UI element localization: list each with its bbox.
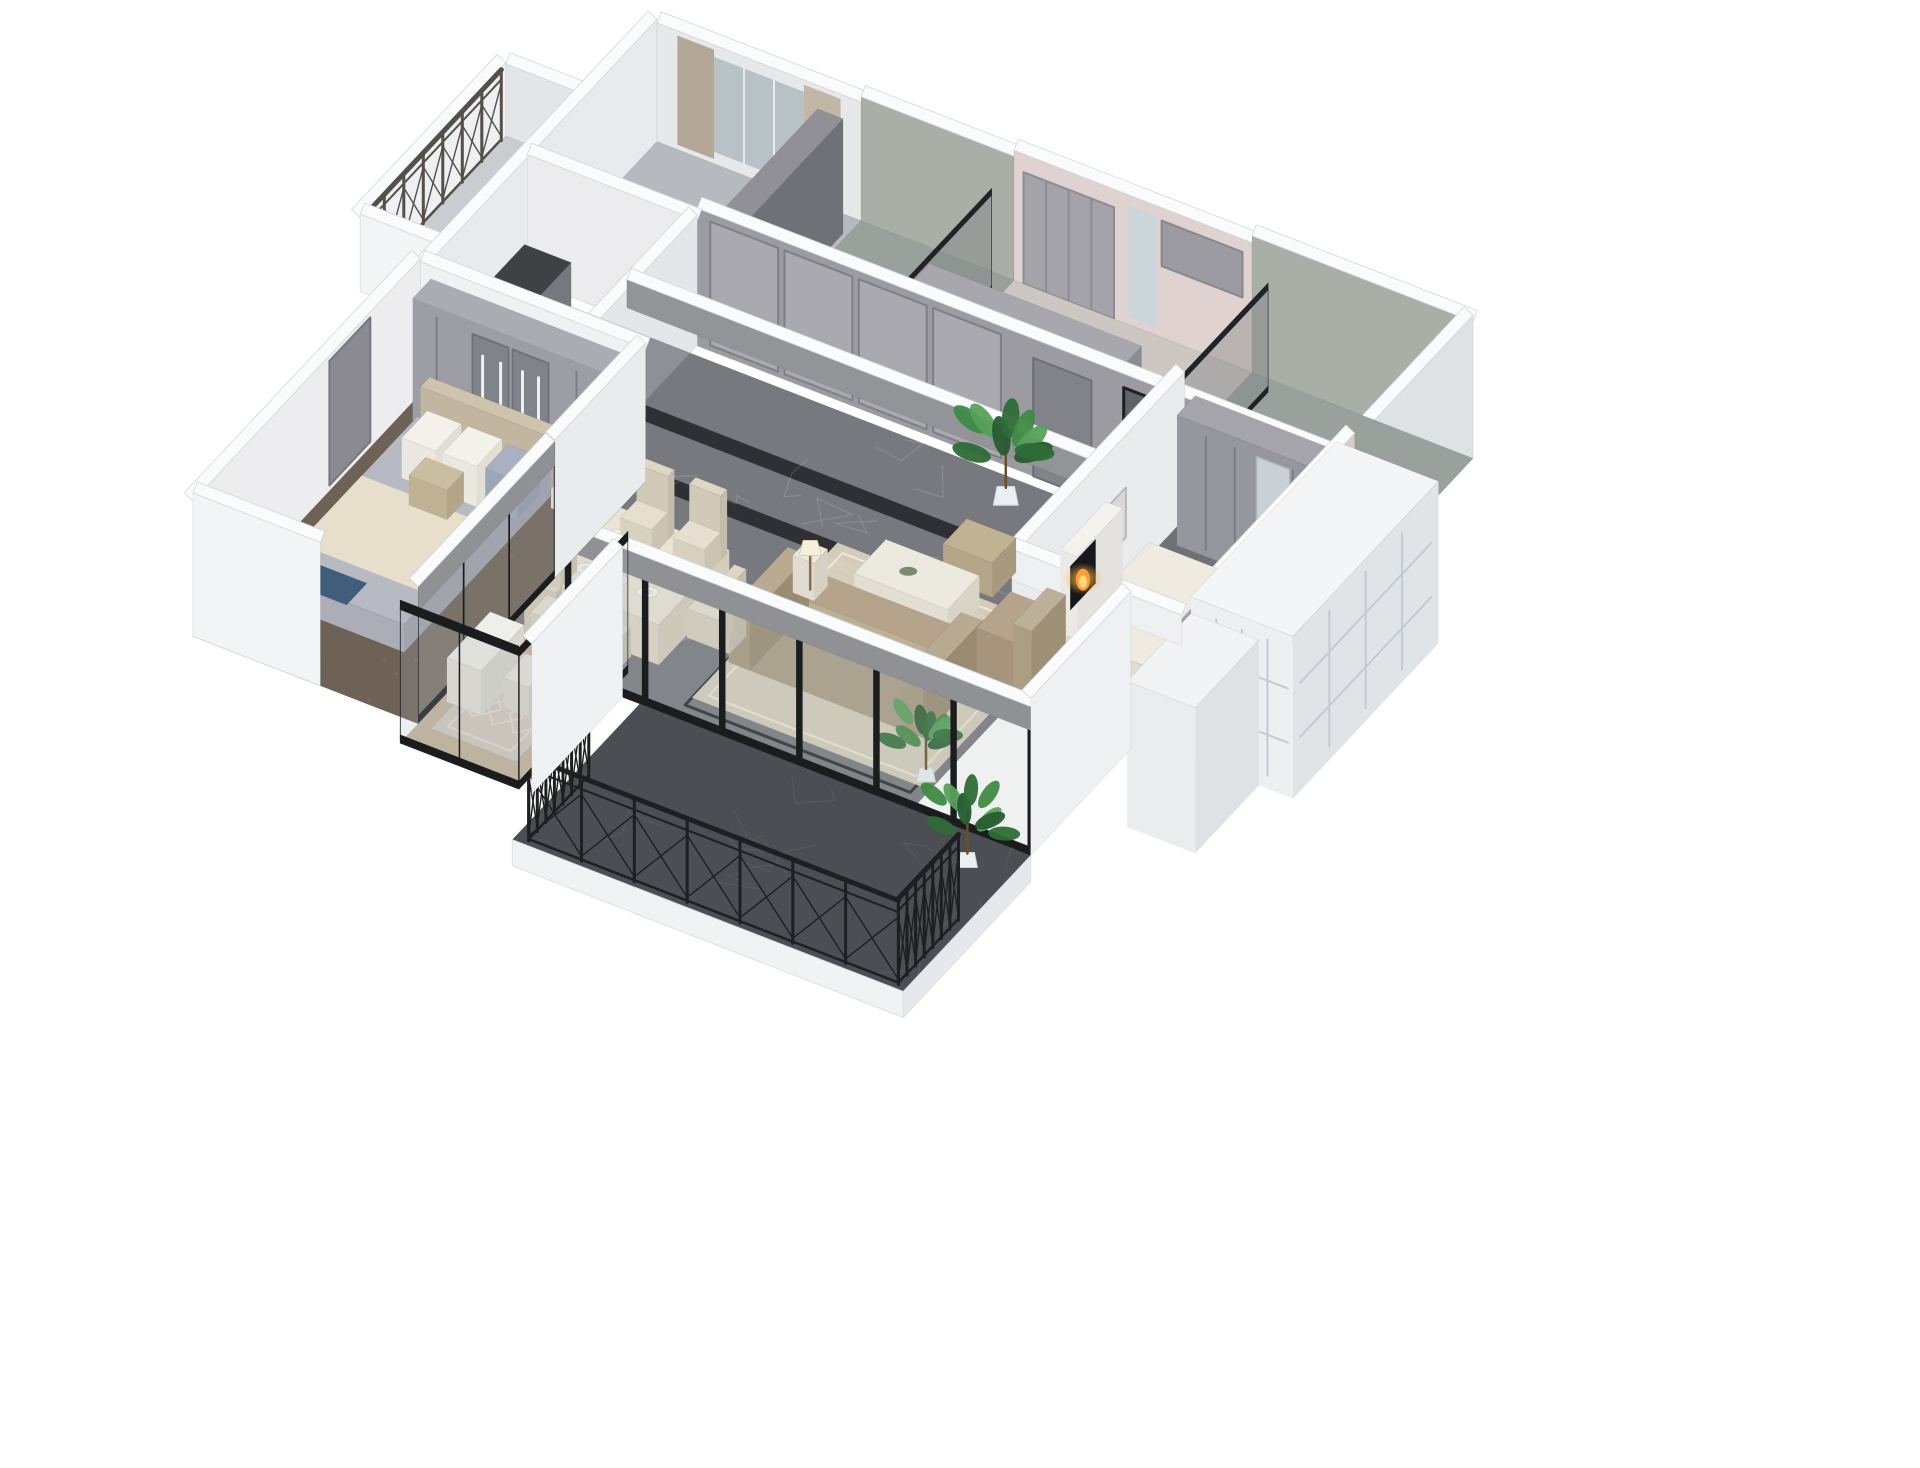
table-decor xyxy=(899,567,917,576)
floorplan-figure xyxy=(0,0,1920,1468)
floorplan-3d-render xyxy=(0,0,1920,1468)
